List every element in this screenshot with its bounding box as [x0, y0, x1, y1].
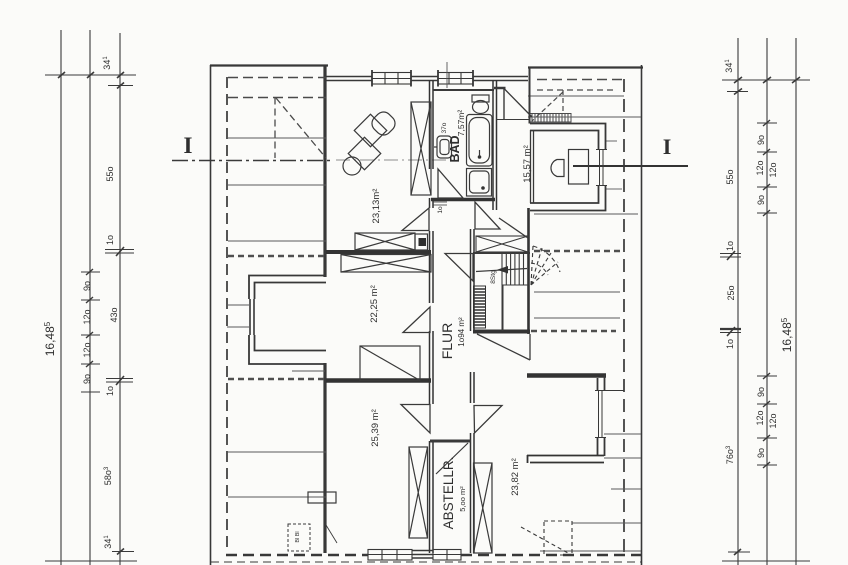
svg-text:7,57m²: 7,57m²	[456, 110, 466, 137]
svg-text:12o: 12o	[82, 309, 92, 324]
svg-text:1o: 1o	[725, 241, 735, 251]
svg-text:9o: 9o	[756, 387, 766, 397]
svg-text:55o: 55o	[105, 166, 115, 181]
svg-text:5,oo m²: 5,oo m²	[458, 486, 467, 512]
svg-text:16,485: 16,485	[780, 317, 794, 352]
svg-text:1o: 1o	[105, 235, 115, 245]
svg-text:BAD: BAD	[448, 135, 462, 162]
svg-text:9o: 9o	[756, 135, 766, 145]
svg-text:16,485: 16,485	[43, 321, 57, 356]
svg-text:23,13m²: 23,13m²	[371, 189, 382, 224]
svg-text:1o: 1o	[105, 386, 115, 396]
svg-text:8Stg: 8Stg	[490, 270, 497, 284]
svg-text:1o94 m²: 1o94 m²	[457, 317, 466, 347]
svg-text:12o: 12o	[82, 342, 92, 357]
svg-text:12o: 12o	[768, 162, 778, 177]
svg-text:12o: 12o	[755, 410, 765, 425]
svg-text:55o: 55o	[725, 169, 735, 184]
svg-text:I: I	[184, 133, 193, 158]
svg-text:9o: 9o	[82, 281, 92, 291]
svg-text:25,39 m²: 25,39 m²	[370, 409, 381, 447]
svg-text:25o: 25o	[726, 285, 736, 300]
svg-text:15,57 m²: 15,57 m²	[522, 145, 533, 183]
svg-text:FLUR: FLUR	[439, 323, 455, 360]
svg-text:12o: 12o	[755, 160, 765, 175]
svg-text:Bl Bl: Bl Bl	[295, 531, 301, 542]
svg-text:22,25 m²: 22,25 m²	[369, 285, 380, 323]
svg-text:9o: 9o	[82, 374, 92, 384]
svg-text:I: I	[663, 134, 672, 159]
svg-text:43o: 43o	[109, 307, 119, 322]
svg-text:ABSTELLR.: ABSTELLR.	[441, 457, 456, 530]
svg-text:37o: 37o	[441, 122, 448, 133]
svg-text:12o: 12o	[768, 413, 778, 428]
svg-text:9o: 9o	[756, 195, 766, 205]
svg-text:23,82 m²: 23,82 m²	[510, 458, 521, 496]
svg-text:1o: 1o	[725, 339, 735, 349]
svg-text:9o: 9o	[756, 448, 766, 458]
svg-text:1o: 1o	[437, 206, 444, 214]
